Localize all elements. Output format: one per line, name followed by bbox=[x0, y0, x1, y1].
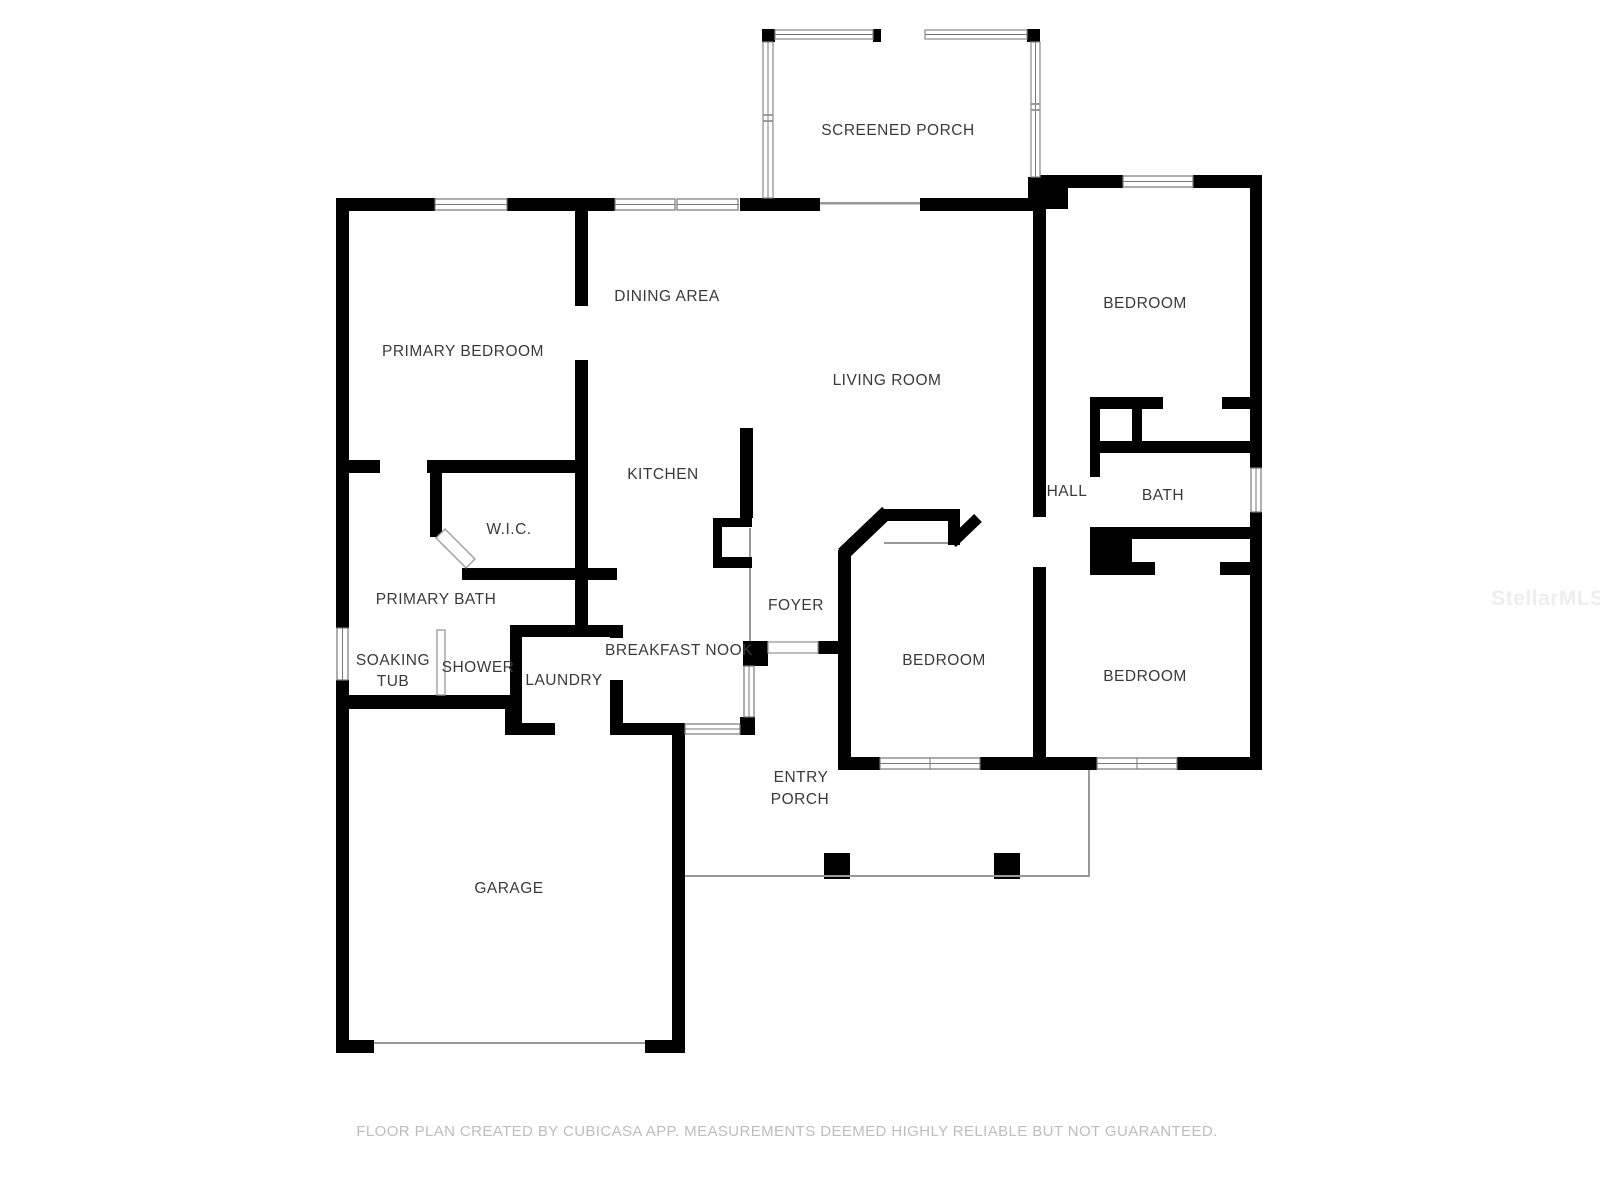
floor-plan-canvas: SCREENED PORCH PRIMARY BEDROOM DINING AR… bbox=[0, 0, 1600, 1200]
label-bedroom-top-right: BEDROOM bbox=[1103, 295, 1187, 312]
watermark: StellarMLS bbox=[1491, 587, 1600, 610]
footer-disclaimer: FLOOR PLAN CREATED BY CUBICASA APP. MEAS… bbox=[356, 1123, 1217, 1140]
screened-porch-walls bbox=[763, 30, 1040, 198]
foyer-separation-line bbox=[749, 568, 751, 641]
label-entry-porch-line2: PORCH bbox=[771, 791, 829, 808]
label-dining-area: DINING AREA bbox=[614, 288, 720, 305]
room-labels: SCREENED PORCH PRIMARY BEDROOM DINING AR… bbox=[356, 122, 1187, 897]
sliding-door-line bbox=[820, 202, 920, 205]
label-primary-bedroom: PRIMARY BEDROOM bbox=[382, 343, 544, 360]
entry-porch-edge-bottom bbox=[685, 875, 1090, 877]
floor-plan-drawing: SCREENED PORCH PRIMARY BEDROOM DINING AR… bbox=[0, 0, 1600, 1200]
label-bedroom-middle: BEDROOM bbox=[902, 652, 986, 669]
bedroom-opening-line bbox=[884, 542, 948, 544]
label-foyer: FOYER bbox=[768, 597, 824, 614]
label-soaking-tub-line2: TUB bbox=[377, 673, 410, 690]
label-bedroom-right: BEDROOM bbox=[1103, 668, 1187, 685]
garage-door-line bbox=[374, 1042, 645, 1044]
label-garage: GARAGE bbox=[474, 880, 543, 897]
label-living-room: LIVING ROOM bbox=[833, 372, 942, 389]
thin-lines bbox=[374, 202, 1090, 1044]
label-screened-porch: SCREENED PORCH bbox=[821, 122, 974, 139]
label-kitchen: KITCHEN bbox=[627, 466, 699, 483]
pantry-door-line bbox=[749, 528, 751, 557]
label-breakfast-nook: BREAKFAST NOOK bbox=[605, 642, 753, 659]
label-wic: W.I.C. bbox=[486, 521, 531, 538]
label-primary-bath: PRIMARY BATH bbox=[376, 591, 497, 608]
label-soaking-tub-line1: SOAKING bbox=[356, 652, 430, 669]
label-bath: BATH bbox=[1142, 487, 1184, 504]
label-hall: HALL bbox=[1047, 483, 1088, 500]
label-entry-porch-line1: ENTRY bbox=[774, 769, 829, 786]
label-shower: SHOWER bbox=[442, 659, 515, 676]
wic-door bbox=[436, 529, 475, 568]
entry-porch-edge-right bbox=[1088, 770, 1090, 875]
entry-door bbox=[768, 642, 818, 653]
label-laundry: LAUNDRY bbox=[525, 672, 602, 689]
